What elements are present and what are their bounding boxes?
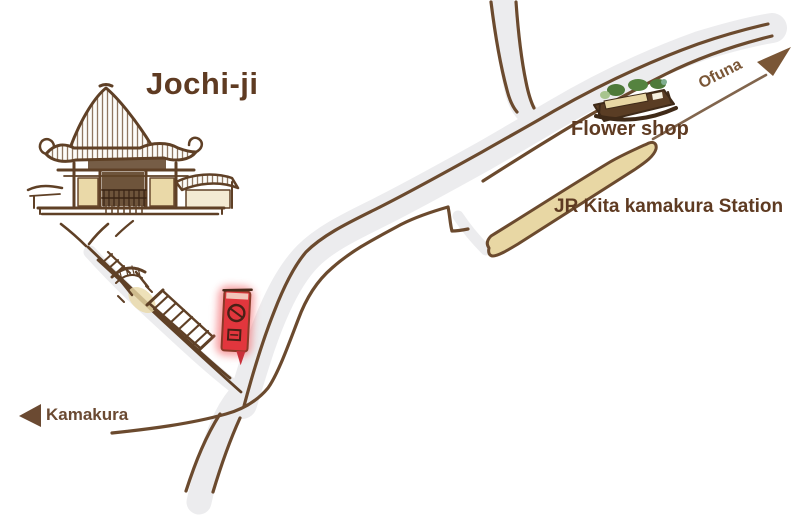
stairs-icon [99,252,214,351]
temple-title: Jochi-ji [146,66,259,102]
temple-illustration [28,85,238,215]
ofuna-arrow-icon [757,47,791,76]
map-drawing [0,0,798,526]
kamakura-direction-label: Kamakura [46,405,128,425]
hand-drawn-map: Jochi-ji Flower shop JR Kita kamakura St… [0,0,798,526]
station-label: JR Kita kamakura Station [554,196,783,218]
flower-shop-label: Flower shop [571,118,689,141]
kamakura-arrow-icon [19,404,41,427]
